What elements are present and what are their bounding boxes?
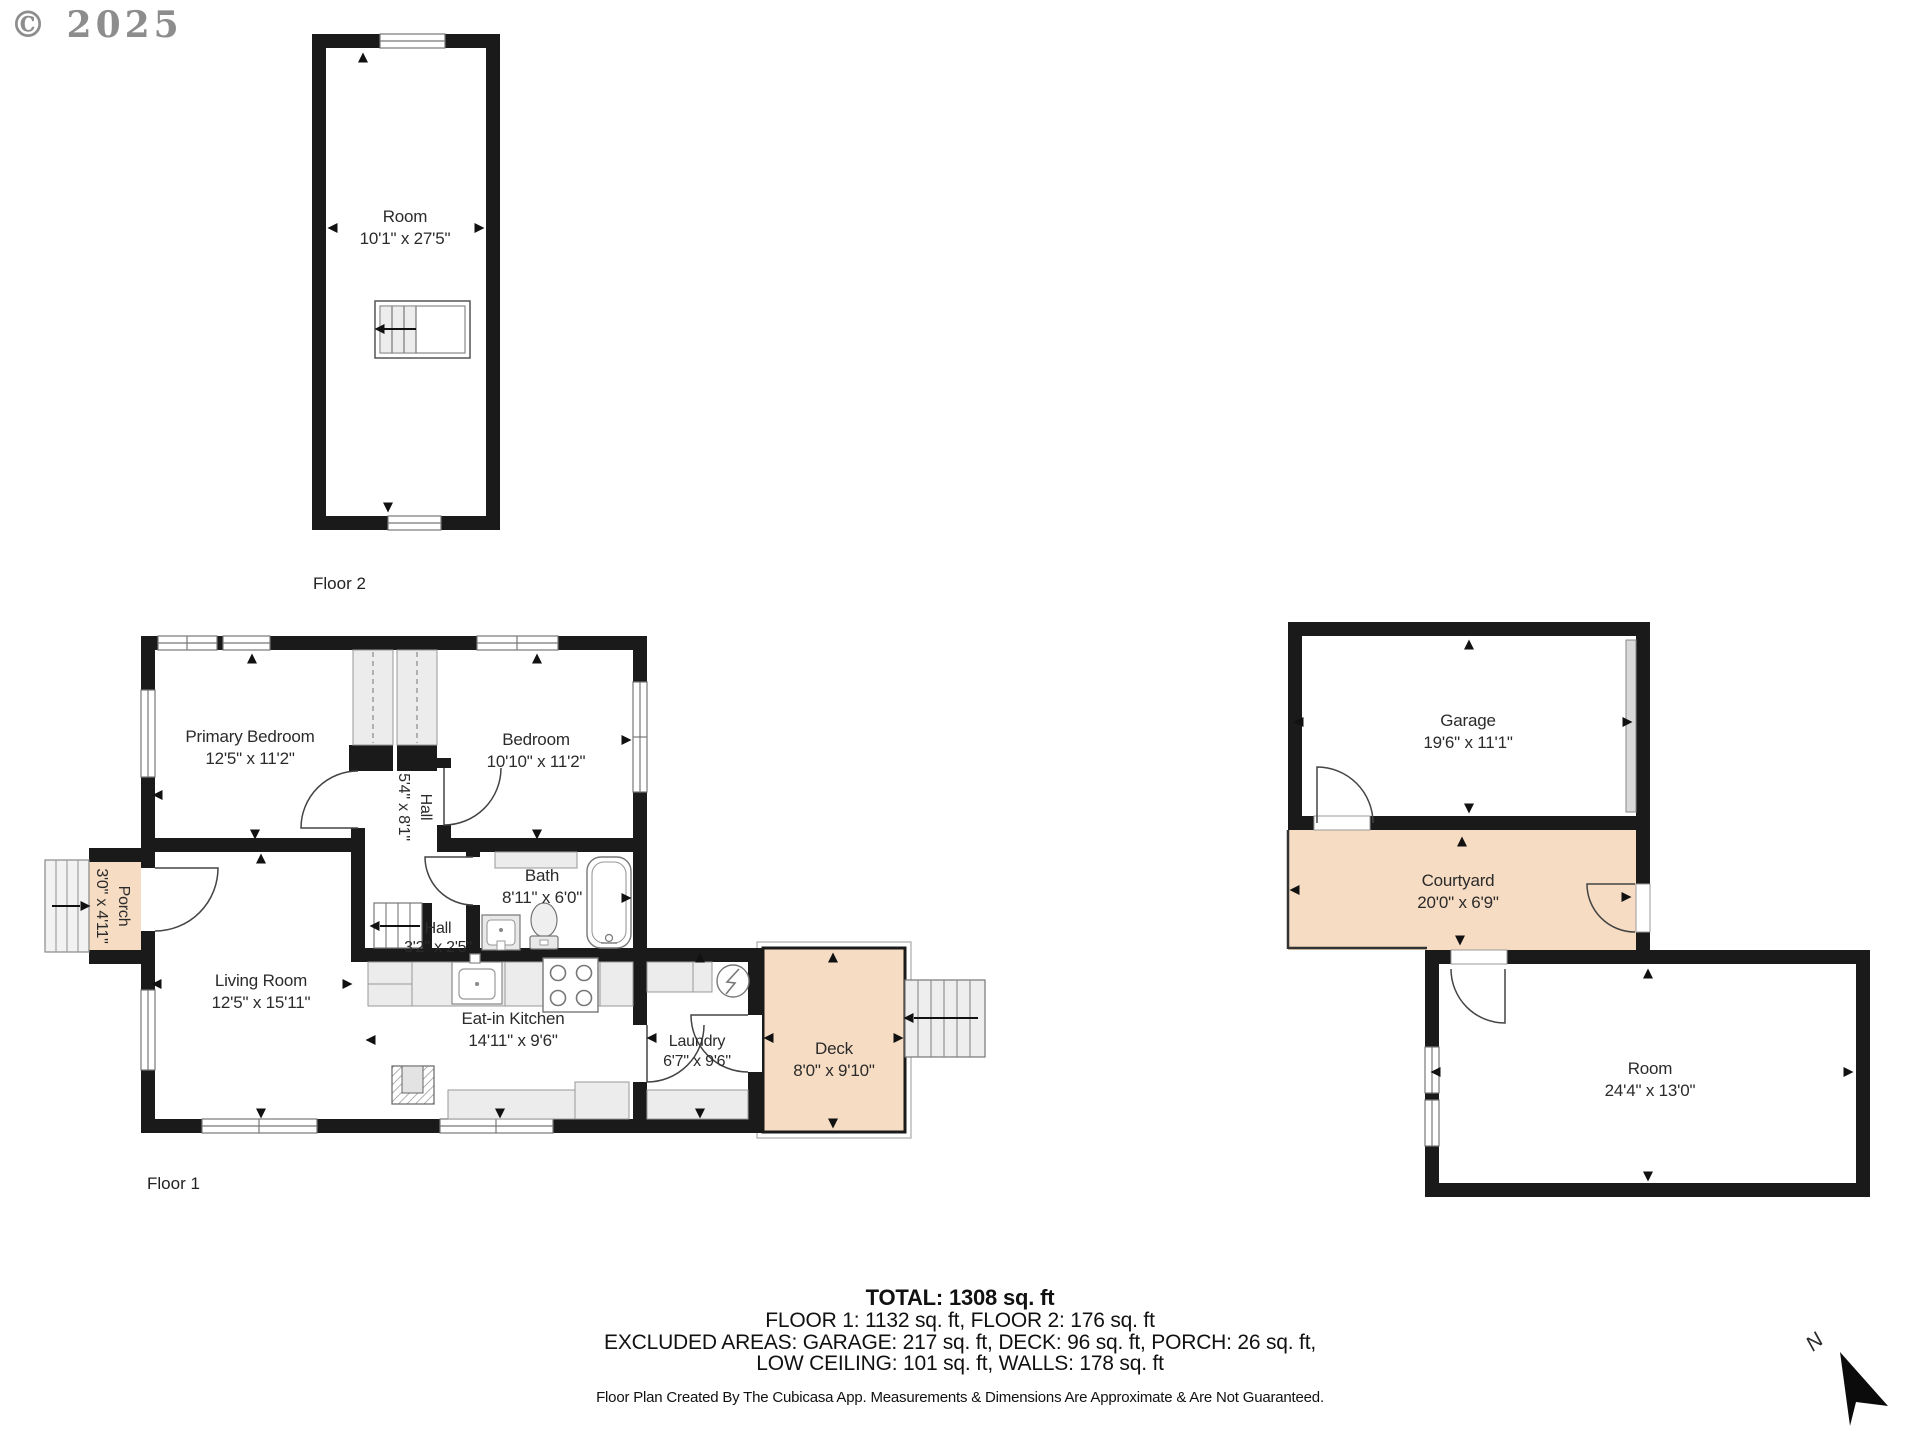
room-dims: 3'2" x 2'5" bbox=[404, 939, 472, 956]
room-name: Bath bbox=[525, 866, 559, 885]
summary-excluded: EXCLUDED AREAS: GARAGE: 217 sq. ft, DECK… bbox=[0, 1332, 1920, 1354]
room-dims: 24'4" x 13'0" bbox=[1605, 1081, 1696, 1100]
floor-plan-page: © 2025 bbox=[0, 0, 1920, 1440]
area-summary: TOTAL: 1308 sq. ft FLOOR 1: 1132 sq. ft,… bbox=[0, 1286, 1920, 1406]
floor2-walls bbox=[312, 34, 500, 530]
room-dims: 20'0" x 6'9" bbox=[1417, 893, 1499, 912]
room-label-bedroom: Bedroom 10'10" x 11'2" bbox=[487, 730, 586, 771]
toilet-icon bbox=[530, 903, 558, 949]
garage-door-icon bbox=[1626, 640, 1636, 812]
floor2-wall-ticks bbox=[328, 53, 485, 513]
room-dims: 19'6" x 11'1" bbox=[1423, 733, 1513, 752]
washer-icon bbox=[717, 965, 749, 997]
bedroom-door-swing bbox=[444, 768, 501, 825]
summary-low-ceiling: LOW CEILING: 101 sq. ft, WALLS: 178 sq. … bbox=[0, 1353, 1920, 1375]
room-dims: 14'11" x 9'6" bbox=[468, 1031, 558, 1050]
room-name: Eat-in Kitchen bbox=[461, 1009, 564, 1028]
room-label-bath: Bath 8'11" x 6'0" bbox=[502, 866, 582, 907]
room-label-living-room: Living Room 12'5" x 15'11" bbox=[212, 971, 311, 1012]
outbuilding-plan: Garage 19'6" x 11'1" Courtyard 20'0" x 6… bbox=[1288, 622, 1870, 1197]
room-name: Laundry bbox=[669, 1033, 726, 1050]
floor1-windows bbox=[141, 636, 647, 1133]
room-name: Porch bbox=[115, 886, 132, 927]
room-dims: 10'1" x 27'5" bbox=[360, 229, 451, 248]
room-label-kitchen: Eat-in Kitchen 14'11" x 9'6" bbox=[461, 1009, 564, 1050]
bathtub-icon bbox=[587, 857, 631, 948]
room-name: Deck bbox=[815, 1039, 854, 1058]
room-label-primary-bedroom: Primary Bedroom 12'5" x 11'2" bbox=[185, 727, 314, 768]
room-dims: 8'11" x 6'0" bbox=[502, 888, 582, 907]
room-name: Primary Bedroom bbox=[185, 727, 314, 746]
stairs-icon bbox=[375, 301, 471, 358]
room-name: Room bbox=[383, 207, 428, 226]
porch-door-swing bbox=[155, 868, 218, 931]
room-dims: 3'0" x 4'11" bbox=[93, 868, 110, 943]
room-name: Hall bbox=[425, 920, 452, 937]
floor1-caption: Floor 1 bbox=[147, 1174, 200, 1194]
room-label-floor2-room: Room 10'1" x 27'5" bbox=[360, 207, 451, 248]
floor1-plan: Primary Bedroom 12'5" x 11'2" Bedroom 10… bbox=[45, 636, 985, 1138]
room-dims: 10'10" x 11'2" bbox=[487, 752, 586, 771]
room-dims: 12'5" x 15'11" bbox=[212, 993, 311, 1012]
room-dims: 12'5" x 11'2" bbox=[205, 749, 295, 768]
room-name: Hall bbox=[417, 794, 434, 821]
fireplace-icon bbox=[392, 1066, 434, 1104]
floor2-plan: Room 10'1" x 27'5" bbox=[312, 34, 500, 530]
primary-bedroom-door-swing bbox=[301, 771, 358, 828]
kitchen-sink-icon bbox=[452, 954, 502, 1004]
summary-floors: FLOOR 1: 1132 sq. ft, FLOOR 2: 176 sq. f… bbox=[0, 1310, 1920, 1332]
floor-plan-drawing: Room 10'1" x 27'5" bbox=[0, 0, 1920, 1440]
floor2-windows bbox=[380, 34, 445, 530]
room-door-swing bbox=[1451, 969, 1505, 1023]
room-label-hall-upper: Hall 5'4" x 8'1" bbox=[395, 773, 434, 841]
stove-icon bbox=[543, 958, 598, 1012]
disclaimer-text: Floor Plan Created By The Cubicasa App. … bbox=[0, 1389, 1920, 1406]
room-label-outbuilding-room: Room 24'4" x 13'0" bbox=[1605, 1059, 1696, 1100]
room-label-garage: Garage 19'6" x 11'1" bbox=[1423, 711, 1513, 752]
room-name: Courtyard bbox=[1422, 871, 1495, 890]
room-name: Room bbox=[1628, 1059, 1673, 1078]
room-name: Garage bbox=[1440, 711, 1496, 730]
room-dims: 8'0" x 9'10" bbox=[793, 1061, 875, 1080]
door-swings bbox=[155, 768, 748, 1082]
room-name: Living Room bbox=[215, 971, 307, 990]
deck-steps-icon bbox=[904, 980, 986, 1057]
floor2-caption: Floor 2 bbox=[313, 574, 366, 594]
bath-door-swing bbox=[425, 857, 473, 905]
kitchen-lower-cabinets bbox=[448, 1082, 629, 1119]
room-dims: 6'7" x 9'6" bbox=[663, 1053, 731, 1070]
room-name: Bedroom bbox=[502, 730, 570, 749]
bath-sink-icon bbox=[482, 915, 520, 950]
closets bbox=[353, 650, 437, 745]
garage-entry-door-swing bbox=[1317, 767, 1373, 823]
summary-total: TOTAL: 1308 sq. ft bbox=[0, 1286, 1920, 1310]
porch-steps-icon bbox=[45, 860, 91, 952]
room-dims: 5'4" x 8'1" bbox=[395, 773, 412, 841]
